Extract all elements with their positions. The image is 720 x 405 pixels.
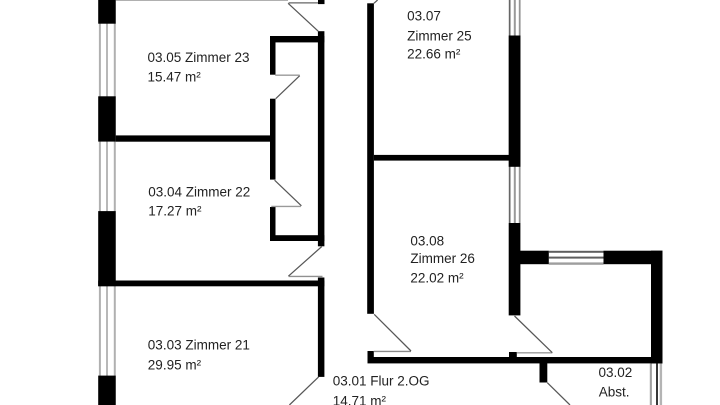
- svg-text:22.02 m²: 22.02 m²: [410, 270, 464, 285]
- svg-text:03.05 Zimmer 23: 03.05 Zimmer 23: [148, 50, 250, 65]
- svg-text:03.07: 03.07: [407, 9, 441, 24]
- svg-text:29.95 m²: 29.95 m²: [148, 358, 202, 373]
- svg-text:15.47 m²: 15.47 m²: [148, 70, 202, 85]
- svg-text:17.27 m²: 17.27 m²: [148, 203, 202, 218]
- svg-text:03.02: 03.02: [599, 365, 633, 380]
- svg-text:03.01 Flur 2.OG: 03.01 Flur 2.OG: [333, 374, 430, 389]
- svg-text:03.04 Zimmer 22: 03.04 Zimmer 22: [148, 185, 250, 200]
- svg-text:Zimmer 25: Zimmer 25: [407, 29, 472, 44]
- svg-text:14.71 m²: 14.71 m²: [333, 393, 387, 405]
- svg-text:03.03 Zimmer 21: 03.03 Zimmer 21: [148, 338, 250, 353]
- svg-text:03.08: 03.08: [410, 234, 444, 249]
- svg-text:22.66 m²: 22.66 m²: [407, 47, 461, 62]
- svg-text:Zimmer 26: Zimmer 26: [410, 251, 475, 266]
- svg-text:Abst.: Abst.: [599, 384, 630, 399]
